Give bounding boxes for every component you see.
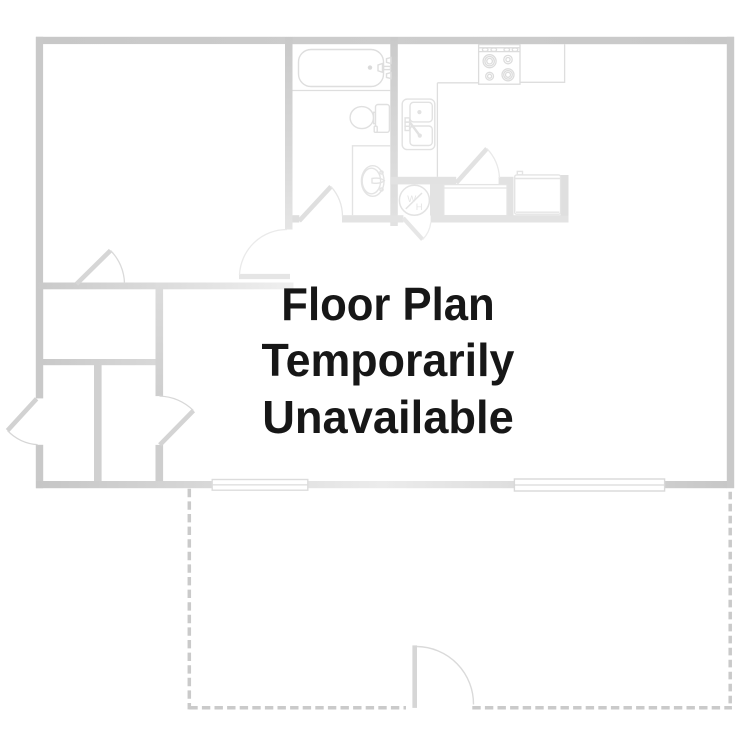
svg-text:H: H — [416, 202, 423, 213]
